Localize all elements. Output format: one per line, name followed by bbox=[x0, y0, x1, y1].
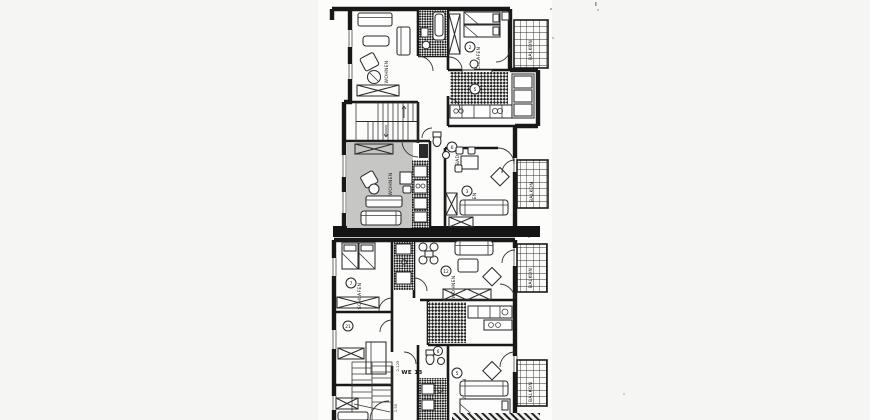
apartment-label: WE 13 bbox=[401, 370, 422, 376]
balcony-top-label: BALKON bbox=[528, 40, 534, 60]
lower-balcony-bottom: BALKON bbox=[517, 360, 547, 406]
sink bbox=[438, 358, 445, 365]
nightstand bbox=[502, 12, 509, 20]
sofa bbox=[460, 381, 508, 396]
room-label-bedroom: SCHLAFEN bbox=[476, 47, 482, 73]
sofa bbox=[455, 241, 493, 255]
page-background: WOHNEN 2 SCHLAFEN bbox=[0, 0, 870, 420]
unit-number-right-living: 3 bbox=[466, 189, 469, 195]
unit-number-small-room: 21 bbox=[345, 324, 351, 330]
dimension-bottom: 1.50 bbox=[393, 403, 398, 412]
floor-plan-scan: WOHNEN 2 SCHLAFEN bbox=[0, 0, 870, 420]
flue bbox=[419, 144, 428, 158]
sofa bbox=[460, 200, 508, 215]
wardrobe bbox=[366, 342, 386, 374]
balcony-label-lower-bottom: BALKON bbox=[528, 382, 534, 402]
stool bbox=[470, 60, 478, 68]
unit-number-kitchen: 5 bbox=[474, 87, 477, 93]
upper-kitchen: 5 bbox=[450, 72, 534, 118]
balcony-right-label: BALKON bbox=[529, 182, 535, 202]
upper-bathroom bbox=[419, 10, 447, 56]
sink bbox=[443, 152, 450, 159]
room-label-lower-bedroom: SCHLAFEN bbox=[357, 283, 363, 309]
room-label-bath: BAD bbox=[455, 155, 461, 166]
unit-number-lower-bath: 6 bbox=[437, 349, 440, 355]
unit-number-living-top: 12 bbox=[443, 269, 449, 275]
dining-table bbox=[461, 156, 478, 169]
dining-table bbox=[400, 172, 412, 184]
room-label-highlight-living: WOHNEN bbox=[388, 173, 394, 196]
armchair bbox=[458, 259, 478, 272]
balcony-label-lower-top: BALKON bbox=[528, 268, 534, 288]
unit-number-living-bottom: 5 bbox=[456, 371, 459, 377]
unit-number-lower-bedroom: 7 bbox=[350, 281, 353, 287]
toilet bbox=[421, 28, 428, 37]
sink bbox=[422, 41, 430, 49]
lower-bottom-hatch bbox=[452, 413, 540, 420]
dimension-top: 2.125 bbox=[395, 360, 400, 371]
unit-number-bath: 6 bbox=[451, 145, 454, 151]
sofa bbox=[361, 211, 401, 225]
fridge-cupboards bbox=[512, 74, 534, 118]
room-label-living-tl: WOHNEN bbox=[384, 61, 390, 84]
unit-number-bedroom: 2 bbox=[469, 45, 472, 51]
